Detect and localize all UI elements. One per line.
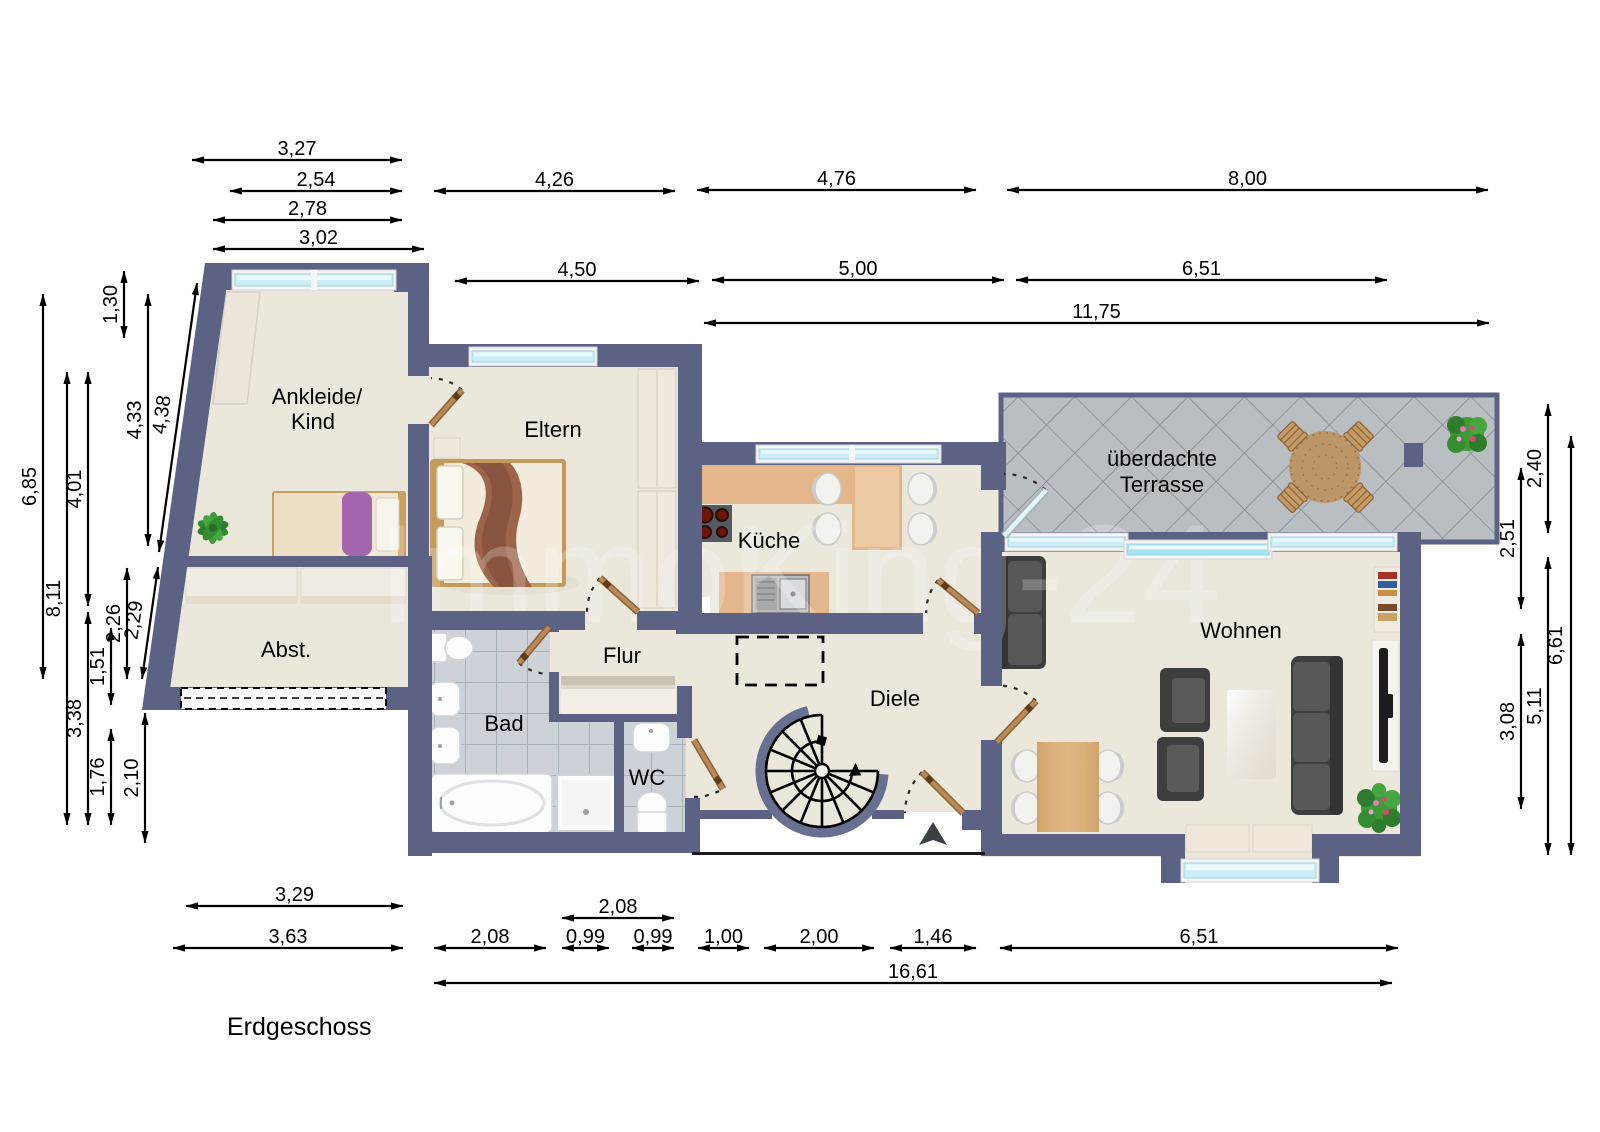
svg-text:1,76: 1,76 [87,758,109,797]
svg-text:überdachte: überdachte [1107,446,1217,471]
svg-text:3,38: 3,38 [64,699,86,738]
svg-text:Diele: Diele [870,686,920,711]
svg-text:3,08: 3,08 [1497,702,1519,741]
svg-text:2,08: 2,08 [599,896,638,918]
svg-text:4,26: 4,26 [535,169,574,191]
svg-text:8,00: 8,00 [1228,168,1267,190]
svg-text:Terrasse: Terrasse [1120,472,1204,497]
svg-text:1,30: 1,30 [100,285,122,324]
svg-text:16,61: 16,61 [888,961,938,983]
svg-text:Küche: Küche [738,528,800,553]
svg-text:4,50: 4,50 [558,259,597,281]
svg-text:Bad: Bad [484,711,523,736]
svg-text:Erdgeschoss: Erdgeschoss [227,1013,372,1041]
svg-text:2,10: 2,10 [121,759,143,798]
svg-text:3,29: 3,29 [275,884,314,906]
svg-text:6,51: 6,51 [1182,258,1221,280]
svg-text:2,40: 2,40 [1524,449,1546,488]
svg-text:2,08: 2,08 [471,926,510,948]
svg-text:5,00: 5,00 [839,258,878,280]
svg-text:Wohnen: Wohnen [1200,618,1282,643]
svg-text:5,11: 5,11 [1524,687,1546,724]
svg-text:3,27: 3,27 [278,138,317,160]
svg-text:3,02: 3,02 [299,227,338,249]
svg-text:Flur: Flur [603,643,641,668]
svg-text:11,75: 11,75 [1072,301,1121,323]
svg-text:2,51: 2,51 [1497,519,1519,558]
svg-text:WC: WC [629,765,666,790]
svg-text:Ankleide/: Ankleide/ [272,384,363,409]
svg-text:Kind: Kind [291,409,335,434]
svg-text:1,51: 1,51 [87,647,109,686]
svg-text:1,46: 1,46 [914,926,953,948]
svg-text:3,63: 3,63 [269,926,308,948]
svg-text:4,76: 4,76 [817,168,856,190]
svg-text:4,33: 4,33 [124,401,146,440]
svg-text:6,85: 6,85 [19,467,41,506]
svg-text:2,54: 2,54 [297,169,336,191]
svg-text:Eltern: Eltern [524,417,581,442]
svg-text:0,99: 0,99 [634,926,673,948]
svg-text:6,51: 6,51 [1180,926,1219,948]
svg-text:2,78: 2,78 [288,198,327,220]
svg-text:1,00: 1,00 [704,926,743,948]
svg-text:Abst.: Abst. [261,637,311,662]
svg-text:0,99: 0,99 [566,926,605,948]
svg-text:2,00: 2,00 [800,926,839,948]
svg-text:8,11: 8,11 [43,580,65,617]
